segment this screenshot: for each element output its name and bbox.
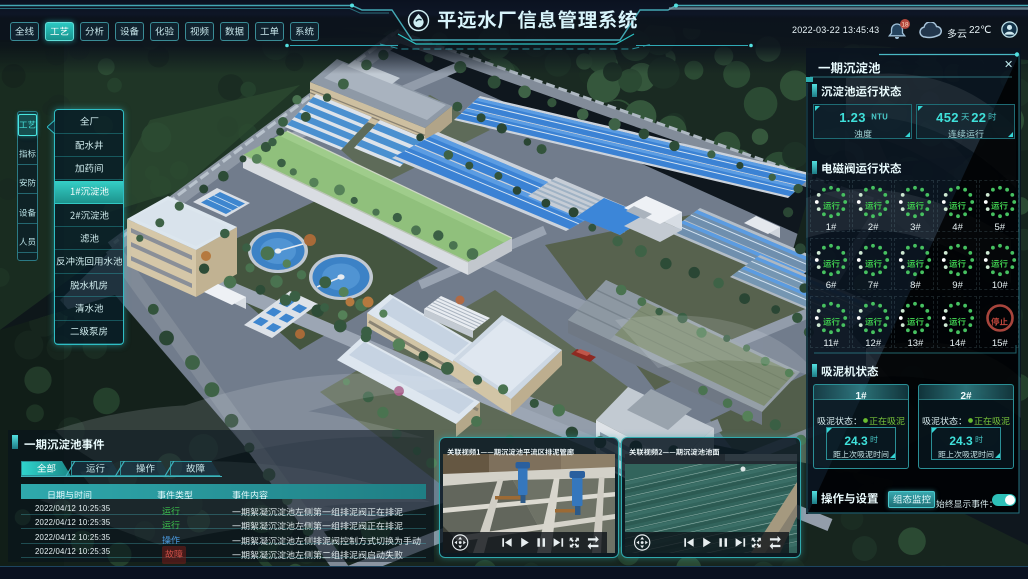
svg-text:18: 18: [901, 21, 909, 28]
